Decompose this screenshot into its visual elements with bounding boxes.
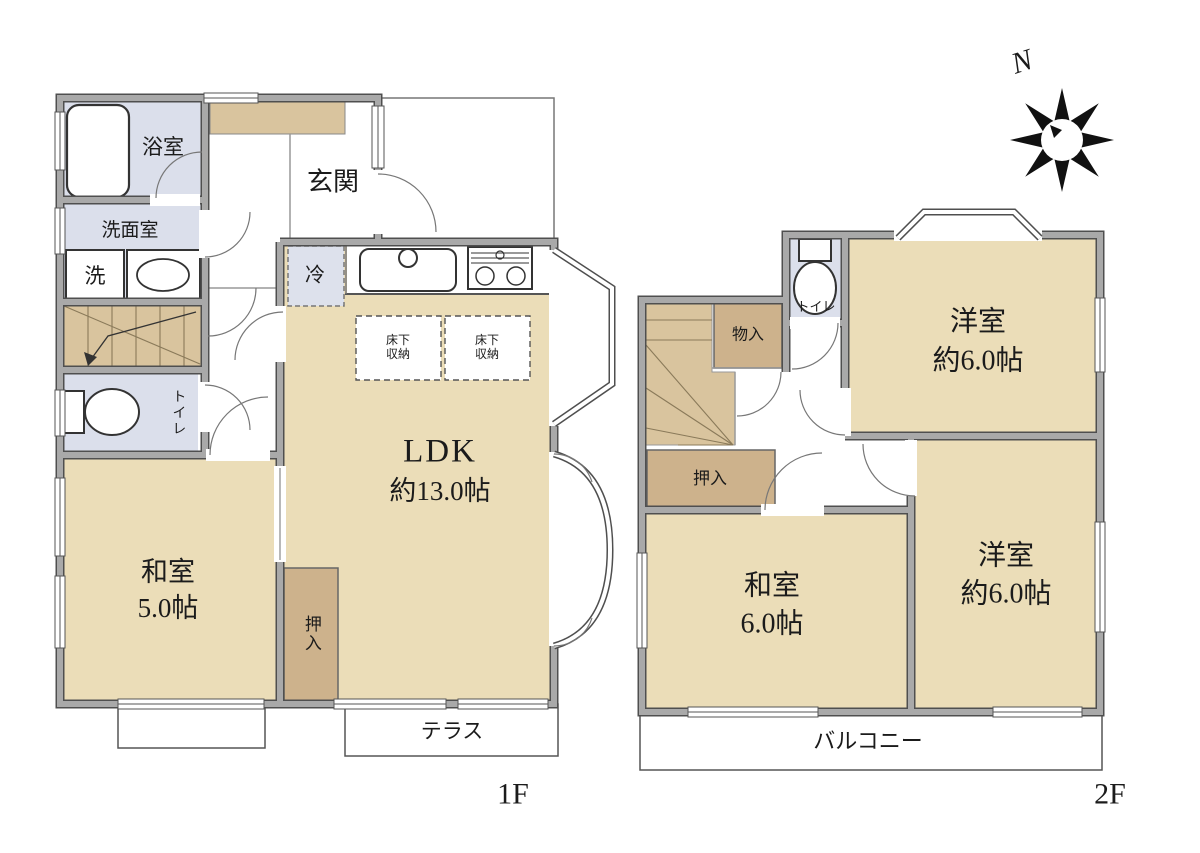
porch-outline <box>118 704 265 748</box>
bay-window-1f <box>554 250 612 424</box>
label-underfloor-1a: 床下 <box>386 334 410 348</box>
bow-window-1f <box>554 454 610 646</box>
label-western-room-top-size: 約6.0帖 <box>932 346 1023 375</box>
label-ldk-size: 約13.0帖 <box>389 477 490 505</box>
label-washroom: 洗面室 <box>101 221 158 241</box>
label-japanese-room-1f: 和室 <box>141 558 195 586</box>
label-entrance: 玄関 <box>307 168 359 195</box>
entrance-porch <box>378 98 554 242</box>
label-storage-2f: 物入 <box>732 328 764 345</box>
label-fridge: 冷 <box>305 266 325 287</box>
label-washer: 洗 <box>85 265 106 287</box>
label-underfloor-1b: 収納 <box>386 348 410 362</box>
label-terrace: テラス <box>421 720 484 742</box>
label-underfloor-2a: 床下 <box>475 334 499 348</box>
toilet-icon-1f <box>64 389 139 435</box>
label-bath: 浴室 <box>142 136 184 158</box>
label-japanese-room-2f: 和室 <box>744 571 800 600</box>
label-western-room-bottom-size: 約6.0帖 <box>960 579 1051 608</box>
label-ldk: LDK <box>403 435 477 470</box>
stove-icon <box>468 247 532 289</box>
floor2-plan <box>640 235 1102 770</box>
label-floor-2f: 2F <box>1094 778 1126 810</box>
vanity-sink-icon <box>137 259 189 291</box>
kitchen-sink-icon <box>360 249 456 291</box>
label-balcony: バルコニー <box>813 729 923 752</box>
label-closet-1f: 押入 <box>302 615 320 653</box>
label-floor-1f: 1F <box>497 778 529 810</box>
label-japanese-room-2f-size: 6.0帖 <box>740 609 803 638</box>
stairs-1f <box>60 302 205 370</box>
entrance-closet <box>210 102 345 134</box>
label-western-room-top: 洋室 <box>950 307 1006 336</box>
label-toilet-1f: トイレ <box>170 389 185 437</box>
label-underfloor-2b: 収納 <box>475 348 499 362</box>
floorplan-page: 浴室 洗面室 洗 玄関 冷 トイレ 和室 5.0帖 押入 LDK 約13.0帖 … <box>0 0 1200 853</box>
label-western-room-bottom: 洋室 <box>978 541 1034 570</box>
compass-rose <box>1010 88 1114 192</box>
bathtub-icon <box>67 105 129 197</box>
label-closet-2f: 押入 <box>693 470 727 488</box>
label-toilet-2f: トイレ <box>796 300 835 314</box>
label-japanese-room-1f-size: 5.0帖 <box>138 594 199 622</box>
western-room-bottom-floor <box>911 436 1100 712</box>
